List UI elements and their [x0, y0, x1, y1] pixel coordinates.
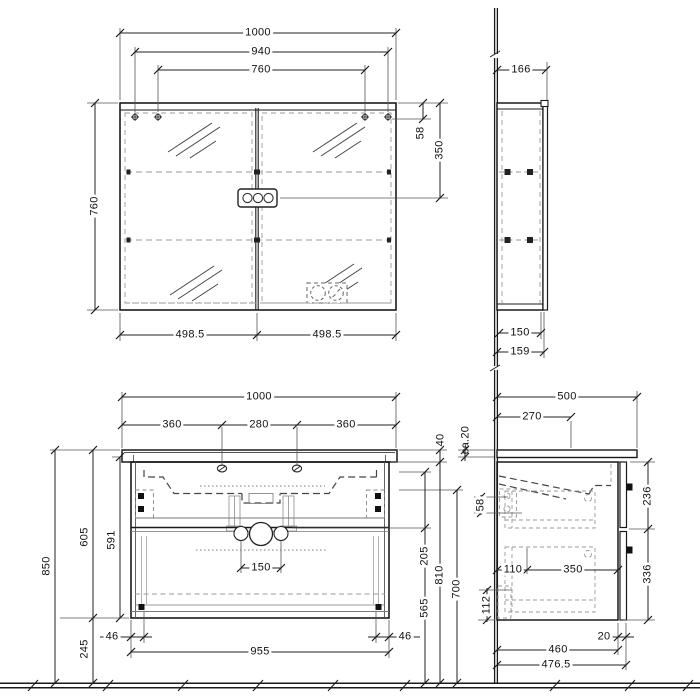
dim-mirror-front-depth: 159 [508, 347, 531, 358]
dim-vside-overall-depth: 476.5 [539, 660, 572, 671]
dim-vanity-basin-to-drain: 205 [420, 544, 431, 567]
dim-vside-front-gap: 20 [596, 632, 613, 643]
socket-cutout-icon [307, 283, 347, 303]
dim-vanity-overall-width: 1000 [244, 392, 274, 403]
dim-vanity-tap-spacing: 280 [247, 420, 270, 431]
dim-vside-countertop-thickness: ca.20 [461, 426, 472, 454]
dim-vside-countertop-depth: 500 [555, 392, 578, 403]
dim-vanity-tap-left: 360 [160, 420, 183, 431]
wall-bracket-icon [136, 490, 385, 518]
dim-vanity-basin-bottom-height: 700 [452, 577, 463, 600]
dim-vanity-basin-rim: 40 [436, 434, 447, 447]
dim-vanity-height-total: 850 [42, 556, 53, 575]
mirror-side-view [497, 101, 548, 311]
dim-vside-service-space: 112 [482, 594, 493, 616]
dim-mirror-door-left: 498.5 [173, 330, 206, 341]
dim-mirror-body-depth: 150 [508, 328, 531, 339]
dim-vside-lower-front: 336 [643, 562, 654, 585]
dim-vside-tap-from-wall: 270 [520, 412, 543, 423]
mirror-front-view [120, 103, 396, 310]
technical-drawing: 1000 940 760 760 58 350 498.5 498.5 166 … [0, 0, 700, 700]
siphon-space [498, 586, 511, 618]
dim-vside-runner-length: 350 [561, 565, 584, 576]
switch-panel-icon [238, 189, 277, 207]
dim-mirror-mounting-outer: 940 [249, 47, 272, 58]
dim-mirror-overall-width: 1000 [243, 28, 273, 39]
dim-vanity-height-cabinet: 591 [107, 530, 118, 549]
dim-mirror-top-to-switch: 350 [435, 138, 446, 161]
dim-vanity-bracket-right: 46 [397, 632, 414, 643]
dim-vanity-floor-clearance: 245 [80, 639, 91, 658]
knob-icon [627, 484, 633, 554]
dim-vanity-cabinet-width: 955 [248, 647, 271, 658]
dim-vanity-underside-height: 810 [435, 563, 446, 586]
dim-vanity-drain-height: 565 [420, 596, 431, 619]
dim-vside-body-depth: 460 [546, 645, 569, 656]
vanity-side-view [497, 450, 637, 620]
dim-vanity-bracket-left: 46 [104, 632, 121, 643]
tap-hole-icon [217, 465, 301, 472]
dim-vanity-tap-right: 360 [334, 420, 357, 431]
dim-mirror-mounting-inner: 760 [249, 65, 272, 76]
floor-line [0, 680, 700, 691]
dim-mirror-overall-depth: 166 [509, 65, 532, 76]
drawing-linework [0, 0, 700, 700]
dim-mirror-height: 760 [90, 194, 101, 217]
dim-mirror-door-right: 498.5 [310, 330, 343, 341]
dim-vanity-height-unit: 605 [80, 527, 91, 546]
dim-vanity-drain-spacing: 150 [249, 563, 272, 574]
dim-vside-basin-back: 58 [476, 497, 487, 514]
drawer-box-hidden [498, 489, 595, 618]
vanity-front-view [122, 450, 397, 618]
dim-vside-runner-offset: 110 [502, 565, 524, 576]
dim-vside-upper-front: 236 [643, 484, 654, 507]
dim-mirror-top-to-mount: 58 [416, 127, 427, 140]
